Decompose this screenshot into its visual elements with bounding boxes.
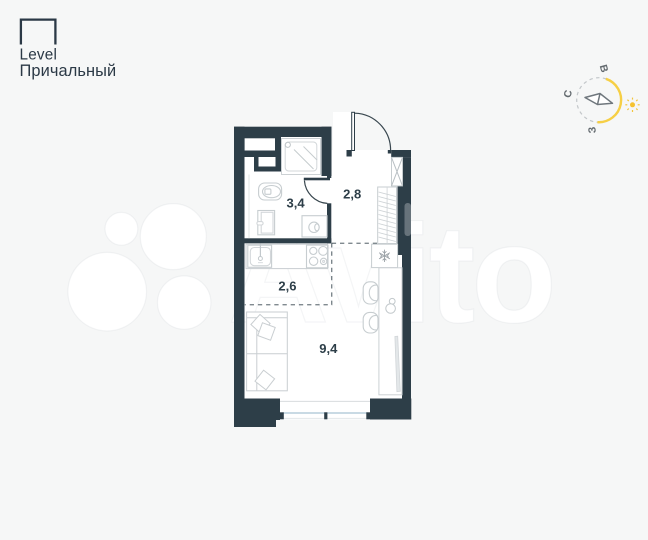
svg-text:9,4: 9,4 — [319, 341, 338, 356]
svg-text:Причальный: Причальный — [20, 62, 117, 80]
svg-text:Level: Level — [20, 46, 58, 63]
svg-text:2,8: 2,8 — [343, 186, 361, 201]
svg-text:3,4: 3,4 — [287, 195, 306, 210]
svg-text:2,6: 2,6 — [278, 279, 296, 294]
